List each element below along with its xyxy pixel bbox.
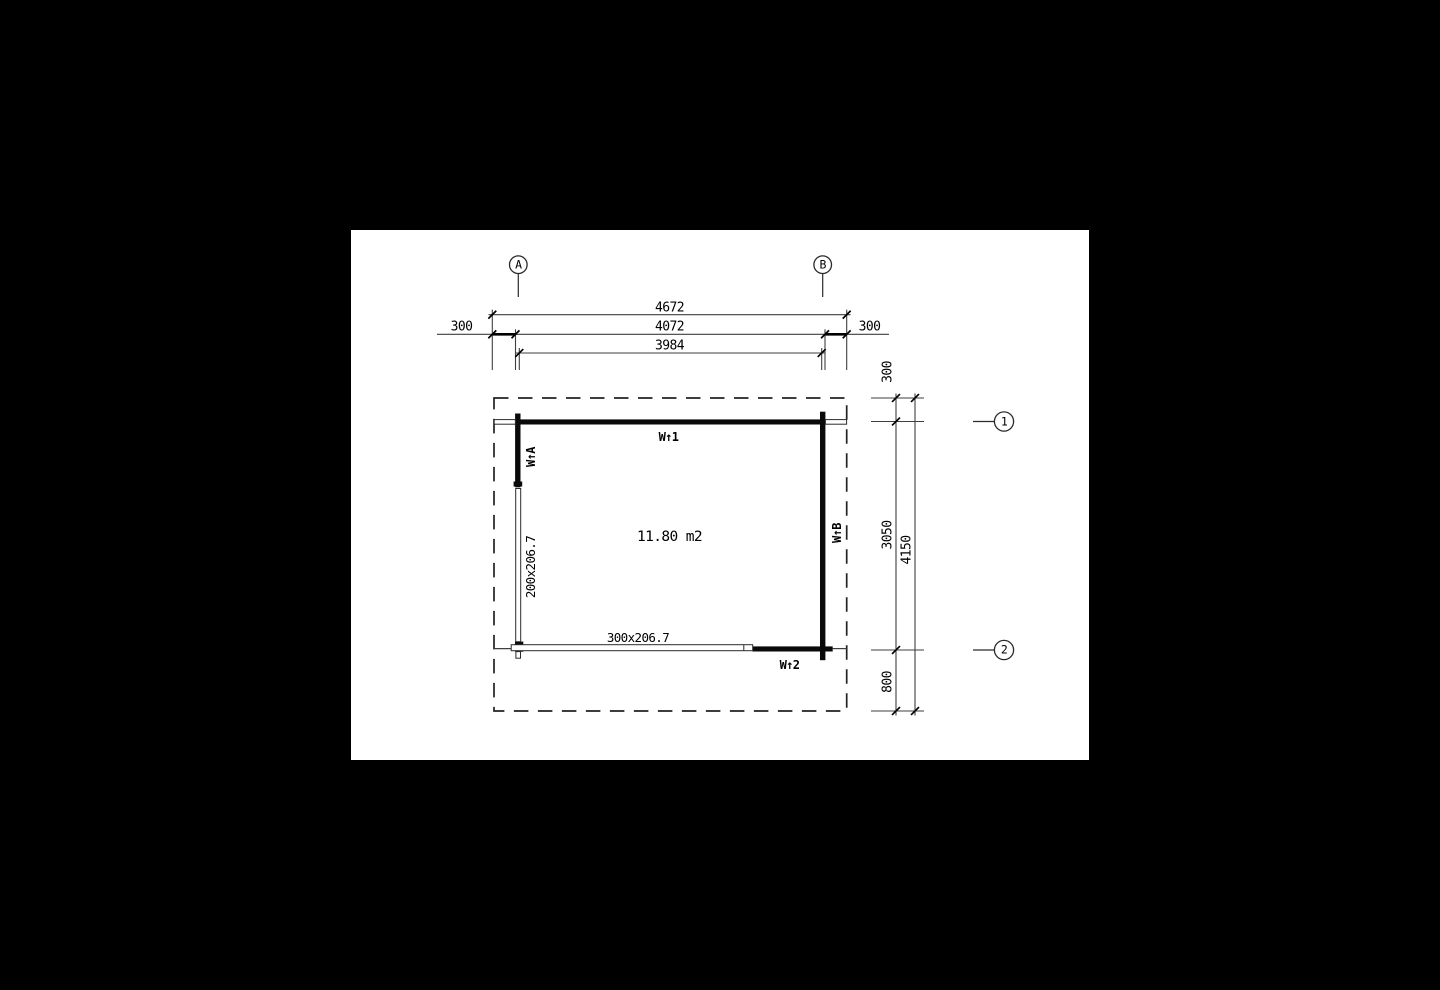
- grid-bubble-2-label: 2: [1001, 644, 1007, 656]
- window-bottom-size-label: 300x206.7: [607, 631, 669, 644]
- wall-label-wa: W↑A: [525, 447, 537, 467]
- dim-inner-width-label: 3984: [655, 339, 684, 352]
- wall-label-w1: W↑1: [659, 431, 679, 443]
- dim-offset-top-label: 300: [881, 361, 894, 383]
- window-left: [516, 489, 521, 642]
- log-end-plate-top-left: [494, 420, 515, 425]
- wall-label-w2: W↑2: [780, 659, 800, 671]
- right-dimension-lines: [871, 394, 924, 716]
- dim-offset-bottom-label: 800: [881, 671, 894, 693]
- grid-bubble-b-label: B: [820, 259, 826, 271]
- grid-bubble-1-label: 1: [1001, 416, 1007, 428]
- wall-right: [820, 412, 825, 661]
- window-bottom: [511, 645, 753, 651]
- wall-left-endcap: [514, 482, 523, 487]
- grid-markers-top: [510, 256, 832, 297]
- wall-left-upper: [515, 414, 520, 488]
- dim-offset-right-label: 300: [859, 320, 881, 333]
- floorplan-drawing: 4672 300 4072 300 3984 300 3050 800 4150…: [351, 230, 1089, 760]
- floorplan-geometry: [351, 230, 1089, 760]
- wall-label-wb: W↑B: [831, 523, 843, 543]
- wall-top: [515, 419, 826, 424]
- dim-offset-left-label: 300: [451, 320, 473, 333]
- grid-markers-right: [973, 412, 1014, 660]
- grid-bubble-a-label: A: [515, 259, 521, 271]
- window-left-tail: [516, 652, 521, 659]
- dim-overall-width-label: 4672: [655, 301, 684, 314]
- wall-bottom: [753, 646, 833, 651]
- dim-overall-height-label: 4150: [901, 536, 914, 565]
- log-end-plate-top-right: [825, 420, 846, 425]
- dim-span-label: 3050: [881, 521, 894, 550]
- dimension-ticks: [488, 311, 919, 715]
- window-left-size-label: 200x206.7: [524, 536, 537, 598]
- dim-outer-width-label: 4072: [655, 320, 684, 333]
- page-background: { "plan": { "area_label": "11.80 m2", "g…: [0, 0, 1440, 990]
- room-area-label: 11.80 m2: [637, 529, 702, 544]
